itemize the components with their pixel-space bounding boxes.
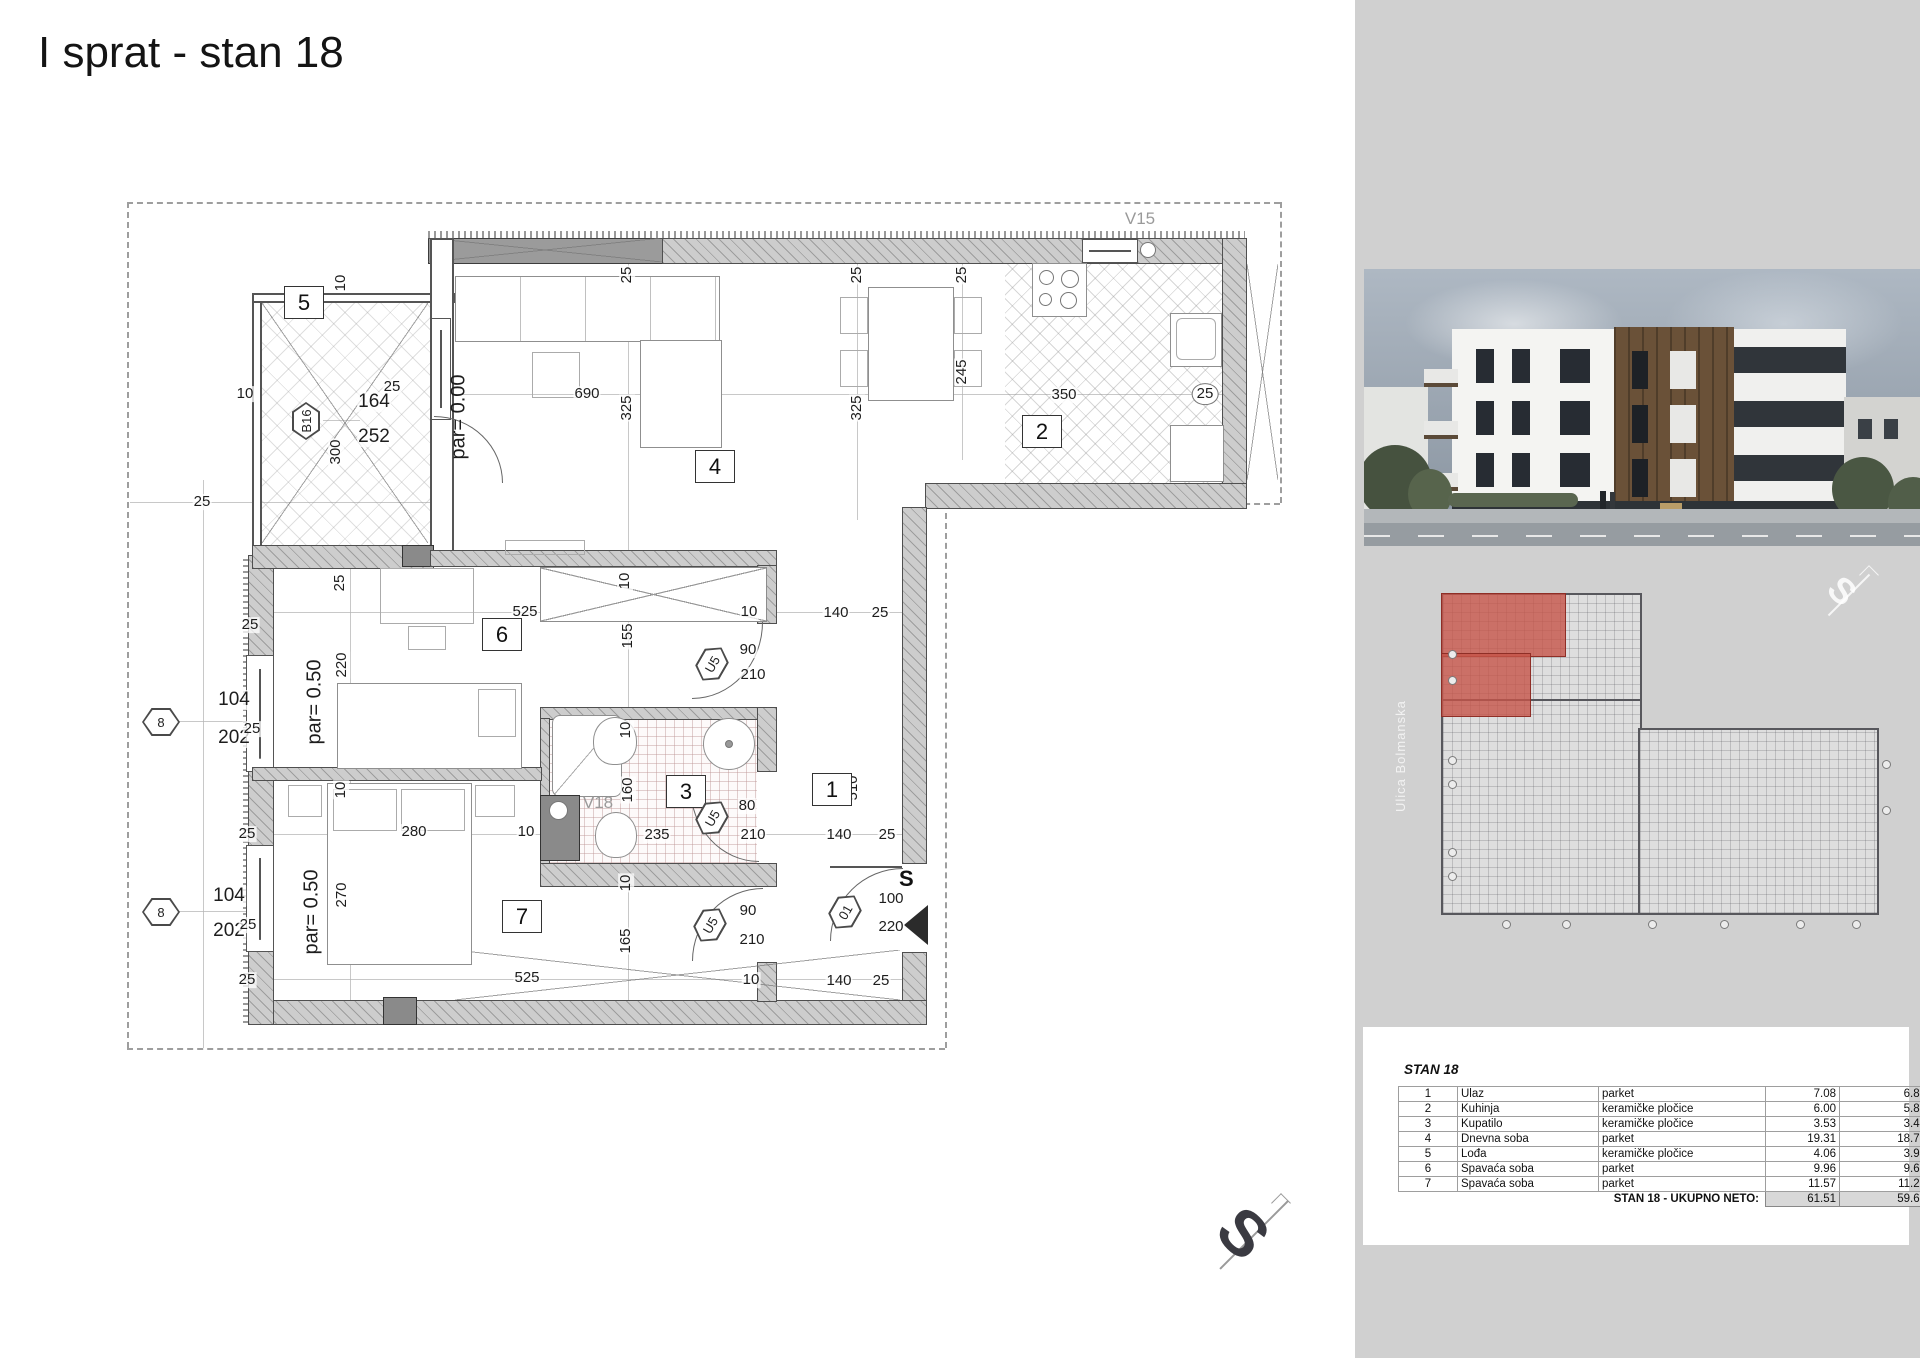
washing-machine-door-icon	[549, 801, 568, 820]
area-table-cell: 11.57	[1766, 1177, 1840, 1192]
dim-label: 270	[334, 881, 350, 908]
window	[1476, 349, 1494, 383]
dim-label: 10	[740, 604, 759, 620]
dim-label: 25	[954, 266, 970, 285]
kitchen-sink-basin	[1176, 318, 1216, 360]
marker-leader	[177, 721, 248, 722]
dim-label: 25	[193, 494, 212, 510]
boundary-right-upper	[1280, 202, 1282, 503]
dim-bubble	[1882, 760, 1891, 769]
area-table-cell: 6.00	[1766, 1102, 1840, 1117]
dim-label: 25	[238, 826, 257, 842]
wall-bath-right	[757, 707, 777, 772]
site-plan	[1438, 591, 1877, 912]
window-label-v18: V18	[582, 794, 614, 812]
dim-bubble	[1852, 920, 1861, 929]
bush-row	[1448, 493, 1578, 507]
boundary-right-lower	[945, 503, 947, 1048]
wall-top-brace	[428, 238, 662, 262]
dim-label: 210	[739, 827, 766, 843]
dim-label: par= 0.50	[305, 658, 326, 745]
dim-bubble	[1502, 920, 1511, 929]
area-table-row: 7Spavaća sobaparket11.5711.22	[1399, 1177, 1920, 1192]
window-bedroom6	[246, 655, 274, 772]
window	[1476, 401, 1494, 435]
window	[1670, 459, 1696, 497]
area-table-cell: Kuhinja	[1458, 1102, 1599, 1117]
dim-label: 245	[954, 358, 970, 385]
room-number-box: 4	[695, 450, 735, 483]
dim-bubble	[1882, 806, 1891, 815]
area-table-cell: keramičke pločice	[1599, 1117, 1766, 1132]
area-table-cell: 18.73	[1840, 1132, 1920, 1147]
area-table-cell: Dnevna soba	[1458, 1132, 1599, 1147]
dim-label: 140	[825, 827, 852, 843]
dim-bubble	[1648, 920, 1657, 929]
dim-label: 80	[738, 798, 757, 814]
window	[1560, 453, 1590, 487]
balcony-shadow	[1734, 455, 1846, 481]
dim-label: 690	[573, 386, 600, 402]
neighbor-zone-brace	[1247, 264, 1278, 480]
area-table-cell: Kupatilo	[1458, 1117, 1599, 1132]
room-number-box: 1	[812, 773, 852, 806]
area-table-cell: 7	[1399, 1177, 1458, 1192]
nightstand	[475, 785, 515, 817]
wall-bed7-divider	[252, 767, 542, 781]
area-table-total-value: 61.51	[1766, 1192, 1840, 1207]
burner-icon	[1060, 292, 1077, 309]
room-number-box: 2	[1022, 415, 1062, 448]
dim-label: 90	[739, 642, 758, 658]
dim-label: 90	[739, 903, 758, 919]
entrance-wedge-icon	[904, 905, 928, 945]
dim-label: 164	[357, 392, 391, 412]
dim-bubble	[1796, 920, 1805, 929]
window	[1670, 405, 1696, 443]
dining-table	[868, 287, 954, 401]
console-table	[505, 540, 585, 555]
area-table-title: STAN 18	[1404, 1062, 1459, 1077]
area-table-cell: 4	[1399, 1132, 1458, 1147]
area-table-cell: keramičke pločice	[1599, 1147, 1766, 1162]
area-table-cell: parket	[1599, 1162, 1766, 1177]
dim-label: 10	[333, 781, 349, 800]
dim-bubble	[1448, 848, 1457, 857]
marker-hex-label: 8	[144, 710, 178, 734]
compass-arrow-head	[1271, 1193, 1291, 1213]
dim-label: 100	[877, 891, 904, 907]
dim-label: 25	[238, 972, 257, 988]
dim-bubble	[1720, 920, 1729, 929]
room-number-box: 6	[482, 618, 522, 651]
area-table-cell: Ulaz	[1458, 1087, 1599, 1102]
highlighted-apartment	[1441, 593, 1566, 657]
toilet	[595, 812, 637, 858]
wall-kitchen-right	[1222, 238, 1247, 509]
dim-bubble	[1562, 920, 1571, 929]
window	[1884, 419, 1898, 439]
area-table-cell: 6	[1399, 1162, 1458, 1177]
area-table-cell: 9.96	[1766, 1162, 1840, 1177]
kitchen-cabinet	[1170, 425, 1224, 482]
area-table-row: 5Lođakeramičke pločice4.063.94	[1399, 1147, 1920, 1162]
window	[1512, 453, 1530, 487]
dim-label: 280	[400, 824, 427, 840]
window	[1560, 401, 1590, 435]
area-table: 1Ulazparket7.086.872Kuhinjakeramičke plo…	[1398, 1086, 1920, 1207]
room-number-box: 7	[502, 900, 542, 933]
window-v15	[1082, 239, 1138, 263]
door-leaf	[830, 866, 902, 868]
dim-bubble	[1448, 780, 1457, 789]
sidewalk	[1364, 509, 1920, 523]
area-table-cell: 3	[1399, 1117, 1458, 1132]
dim-label: 25	[878, 827, 897, 843]
dim-label: 140	[825, 973, 852, 989]
building-render	[1364, 269, 1920, 546]
area-table-cell: 5.82	[1840, 1102, 1920, 1117]
balcony-slab	[1424, 421, 1458, 439]
room-number-box: 3	[666, 775, 706, 808]
entrance-letter: S	[899, 866, 914, 892]
dim-bubble	[1448, 676, 1457, 685]
window-bedroom7	[246, 845, 274, 952]
area-table-cell: 2	[1399, 1102, 1458, 1117]
sofa	[455, 276, 720, 342]
person-silhouette	[1610, 492, 1615, 509]
building-block	[1441, 699, 1642, 915]
wall-kitchen-bottom	[925, 483, 1247, 509]
dim-label: 220	[334, 651, 350, 678]
wall-bath-bottom	[540, 863, 777, 887]
chair	[954, 297, 982, 334]
dim-bubble	[1448, 756, 1457, 765]
marker-hex-label: 8	[144, 900, 178, 924]
area-table-cell: Spavaća soba	[1458, 1162, 1599, 1177]
dim-label: 10	[618, 874, 634, 893]
dim-label: 25	[241, 617, 260, 633]
window	[1560, 349, 1590, 383]
road-center-line	[1364, 535, 1920, 537]
chair	[840, 350, 868, 387]
dim-label: 25	[619, 266, 635, 285]
area-table-cell: Lođa	[1458, 1147, 1599, 1162]
window	[1858, 419, 1872, 439]
area-table-total-label: STAN 18 - UKUPNO NETO:	[1399, 1192, 1766, 1207]
area-table-cell: 6.87	[1840, 1087, 1920, 1102]
burner-icon	[1039, 293, 1052, 306]
area-table-cell: Spavaća soba	[1458, 1177, 1599, 1192]
dim-label: 210	[738, 932, 765, 948]
dim-label: 350	[1050, 387, 1077, 403]
area-table-cell: 1	[1399, 1087, 1458, 1102]
boundary-bottom	[127, 1048, 945, 1050]
window	[1512, 401, 1530, 435]
area-table-row: 3Kupatilokeramičke pločice3.533.42	[1399, 1117, 1920, 1132]
dim-label: 25	[871, 605, 890, 621]
area-table-cell: keramičke pločice	[1599, 1102, 1766, 1117]
wall-middle	[430, 550, 777, 567]
dim-bubble	[1448, 872, 1457, 881]
dim-label: 325	[619, 394, 635, 421]
window	[1632, 405, 1648, 443]
balcony-slab	[1424, 369, 1458, 387]
balcony-shadow	[1734, 347, 1846, 373]
dim-label: 140	[822, 605, 849, 621]
dim-label: 252	[357, 427, 391, 447]
wardrobe-built-in	[540, 567, 767, 622]
dim-label: 155	[620, 622, 636, 649]
nightstand	[288, 785, 322, 817]
dim-label: 25	[239, 917, 258, 933]
dim-label: 10	[742, 972, 761, 988]
dim-label: 25	[332, 574, 348, 593]
dim-label: par= 0.00	[449, 373, 470, 460]
highlighted-apartment	[1441, 653, 1531, 717]
dim-label: par= 0.50	[302, 868, 323, 955]
dim-label: 325	[849, 394, 865, 421]
sofa-chaise	[640, 340, 722, 448]
marker-leader	[177, 911, 248, 912]
dim-label: 10	[618, 721, 634, 740]
dim-chain	[203, 480, 204, 1048]
wall-loggia-top	[252, 293, 456, 303]
dim-label: 10	[517, 824, 536, 840]
window	[1632, 459, 1648, 497]
stove	[1032, 263, 1087, 317]
area-table-cell: 7.08	[1766, 1087, 1840, 1102]
window	[1476, 453, 1494, 487]
area-table-row: 4Dnevna sobaparket19.3118.73	[1399, 1132, 1920, 1147]
dim-label: 160	[620, 776, 636, 803]
basin-drain-icon	[725, 740, 733, 748]
area-table-cell: parket	[1599, 1132, 1766, 1147]
room-number-box: 5	[284, 286, 324, 319]
dim-label: 25	[1192, 383, 1219, 405]
wall-corridor-right	[902, 507, 927, 864]
burner-icon	[1039, 270, 1054, 285]
area-table-cell: 3.42	[1840, 1117, 1920, 1132]
dim-label: 300	[328, 438, 344, 465]
pillow	[478, 689, 516, 737]
marker-hex-8: 8	[142, 898, 180, 926]
wall-bottom	[252, 1000, 927, 1025]
boundary-left	[127, 202, 129, 1048]
area-table-cell: 5	[1399, 1147, 1458, 1162]
desk	[380, 568, 474, 624]
shaft-block	[383, 997, 417, 1025]
dim-label: 220	[877, 919, 904, 935]
area-table-cell: 3.94	[1840, 1147, 1920, 1162]
area-table-total-row: STAN 18 - UKUPNO NETO:61.5159.66	[1399, 1192, 1920, 1207]
building-block	[1638, 728, 1879, 915]
dim-label: 525	[513, 970, 540, 986]
area-table-total-value: 59.66	[1840, 1192, 1920, 1207]
area-table-cell: 11.22	[1840, 1177, 1920, 1192]
dim-bubble	[1448, 650, 1457, 659]
dim-label: 25	[243, 721, 262, 737]
window	[1670, 351, 1696, 389]
area-table-cell: 4.06	[1766, 1147, 1840, 1162]
wall-top	[662, 238, 1247, 264]
chair	[840, 297, 868, 334]
dim-label: 235	[643, 827, 670, 843]
area-table-row: 1Ulazparket7.086.87	[1399, 1087, 1920, 1102]
dim-label: 25	[872, 973, 891, 989]
boundary-top	[127, 202, 1280, 204]
street-label: Ulica Bolmanska	[1393, 700, 1408, 812]
balcony-shadow	[1734, 401, 1846, 427]
area-table-cell: parket	[1599, 1087, 1766, 1102]
person-silhouette	[1600, 491, 1606, 509]
area-table-cell: parket	[1599, 1177, 1766, 1192]
wall-loggia-left	[252, 293, 262, 559]
area-table-cell: 3.53	[1766, 1117, 1840, 1132]
dim-label: 210	[739, 667, 766, 683]
area-table-row: 6Spavaća sobaparket9.969.66	[1399, 1162, 1920, 1177]
area-table-row: 2Kuhinjakeramičke pločice6.005.82	[1399, 1102, 1920, 1117]
dim-label: 10	[333, 274, 349, 293]
window-label-v15: V15	[1124, 210, 1156, 228]
insulation-strip	[428, 231, 1245, 238]
area-table-cell: 9.66	[1840, 1162, 1920, 1177]
area-table-cell: 19.31	[1766, 1132, 1840, 1147]
dim-label: 10	[236, 386, 255, 402]
chair	[408, 626, 446, 650]
window	[1632, 351, 1648, 389]
dim-label: 104	[217, 690, 251, 710]
loggia-terrace-brace	[262, 303, 428, 543]
dim-label: 104	[212, 886, 246, 906]
marker-hex-8: 8	[142, 708, 180, 736]
window	[1512, 349, 1530, 383]
burner-icon	[1061, 270, 1079, 288]
marker-hex-label: B16	[294, 404, 318, 438]
page-title: I sprat - stan 18	[38, 28, 344, 78]
vent-icon	[1140, 242, 1156, 258]
dim-label: 25	[849, 266, 865, 285]
dim-label: 165	[618, 927, 634, 954]
dim-label: 10	[617, 572, 633, 591]
